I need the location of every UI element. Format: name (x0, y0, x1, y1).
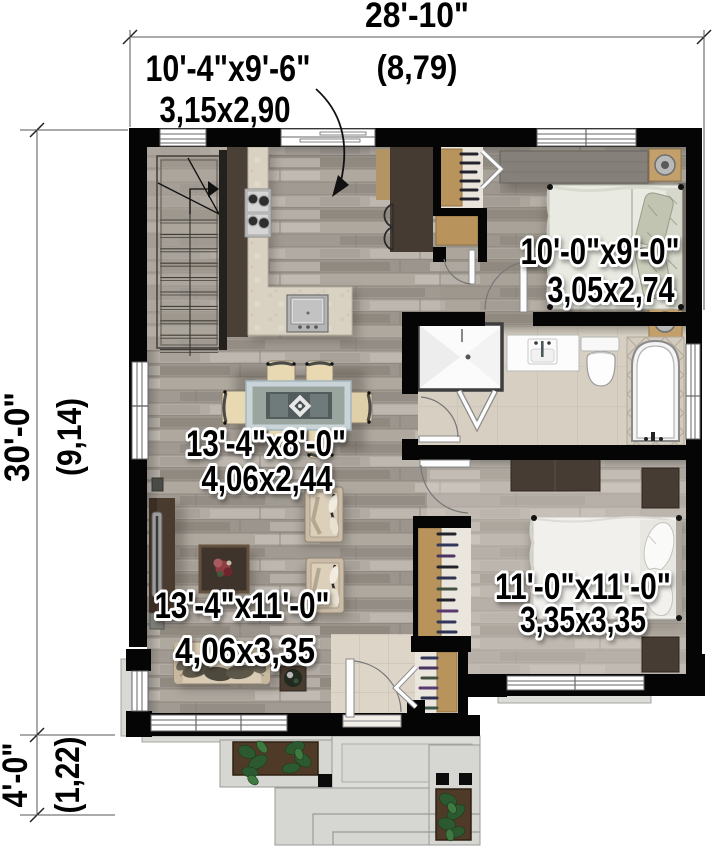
svg-text:4'-0": 4'-0" (0, 743, 35, 808)
svg-text:(8,79): (8,79) (377, 49, 458, 87)
svg-text:3,15x2,90: 3,15x2,90 (160, 89, 291, 130)
svg-text:30'-0": 30'-0" (0, 392, 37, 482)
svg-text:13'-4"x11'-0": 13'-4"x11'-0" (155, 585, 330, 626)
svg-text:3,05x2,74: 3,05x2,74 (548, 269, 675, 310)
svg-text:4,06x3,35: 4,06x3,35 (175, 630, 315, 671)
svg-text:(9,14): (9,14) (51, 398, 89, 476)
svg-text:3,35x3,35: 3,35x3,35 (520, 599, 646, 640)
svg-text:28'-10": 28'-10" (365, 0, 469, 35)
svg-text:10'-0"x9'-0": 10'-0"x9'-0" (521, 231, 680, 272)
svg-text:4,06x2,44: 4,06x2,44 (202, 458, 333, 499)
svg-text:(1,22): (1,22) (49, 737, 87, 814)
svg-text:10'-4"x9'-6": 10'-4"x9'-6" (146, 48, 311, 89)
